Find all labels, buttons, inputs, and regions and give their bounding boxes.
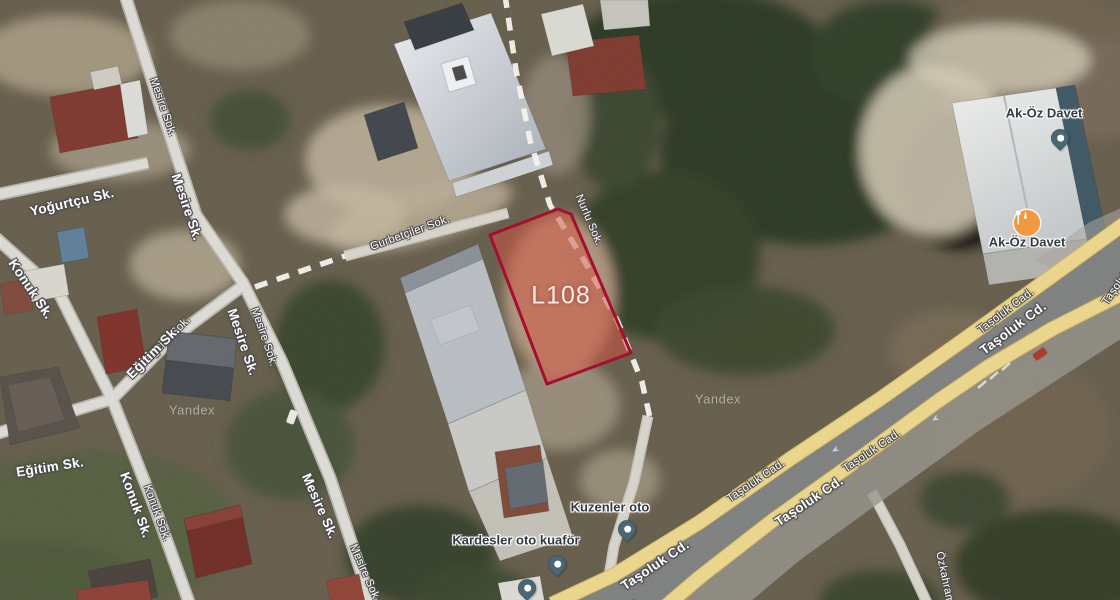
map-canvas[interactable]: L108 Ak-Öz DavetAk-Öz DavetKuzenler otoK… [0,0,1120,600]
map-pin-icon [1047,125,1072,150]
street-label-egitim-sk-diagonal: Eğitim Sk. [124,323,183,382]
pin-bottom[interactable] [517,578,537,600]
labels-overlay: L108 Ak-Öz DavetAk-Öz DavetKuzenler otoK… [0,0,1120,600]
street-label-tasoluk-cad-left: Taşoluk Cad. [725,457,787,505]
yandex-watermark: Yandex [169,403,215,418]
map-pin-icon [614,516,639,541]
street-label-mesire-sk-upper: Mesire Sk. [169,172,206,243]
street-label-yogurtcu-sk: Yoğurtçu Sk. [28,185,115,219]
poi-label-akoz-davet-lower[interactable]: Ak-Öz Davet [989,235,1066,250]
street-label-gurbetciler-sok: Gurbetçiler Sok. [369,213,452,253]
street-label-tasoluk-cd-bottom: Taşoluk Cd. [618,537,692,594]
street-label-nurlu-sok: Nurlu Sok. [573,193,605,248]
poi-label-akoz-davet-upper[interactable]: Ak-Öz Davet [1006,106,1083,121]
map-pin-icon [514,575,539,600]
street-label-tasoluk-cad-corner: Taşoluk Cad. [1100,245,1120,307]
poi-label-kardesler-oto-kuafor[interactable]: Kardesler oto kuaför [452,533,579,548]
street-label-mesire-sk-bottom: Mesire Sk. [299,471,341,541]
street-label-tasoluk-cd-left: Taşoluk Cd. [772,473,846,530]
map-pin-icon [544,551,569,576]
fork-knife-icon [1014,210,1029,225]
pin-kuzenler[interactable] [617,519,637,545]
pin-akoz-davet[interactable] [1050,128,1070,154]
street-label-ozkahraman-sok: Özkahraman [933,550,958,600]
street-label-mesire-sok-bottom: Mesire Sok. [347,543,383,600]
street-label-mesire-sok-top: Mesire Sok. [147,76,178,138]
restaurant-icon[interactable] [1014,210,1040,236]
parcel-label: L108 [531,282,591,311]
pin-kardesler[interactable] [547,554,567,580]
yandex-watermark: Yandex [695,392,741,407]
street-label-tasoluk-cad-mid: Taşoluk Cad. [841,427,903,475]
street-label-konuk-sk-upper: Konuk Sk. [6,256,57,321]
street-label-egitim-sk-horizontal: Eğitim Sk. [15,454,85,479]
poi-label-kuzenler-oto[interactable]: Kuzenler oto [571,500,650,515]
